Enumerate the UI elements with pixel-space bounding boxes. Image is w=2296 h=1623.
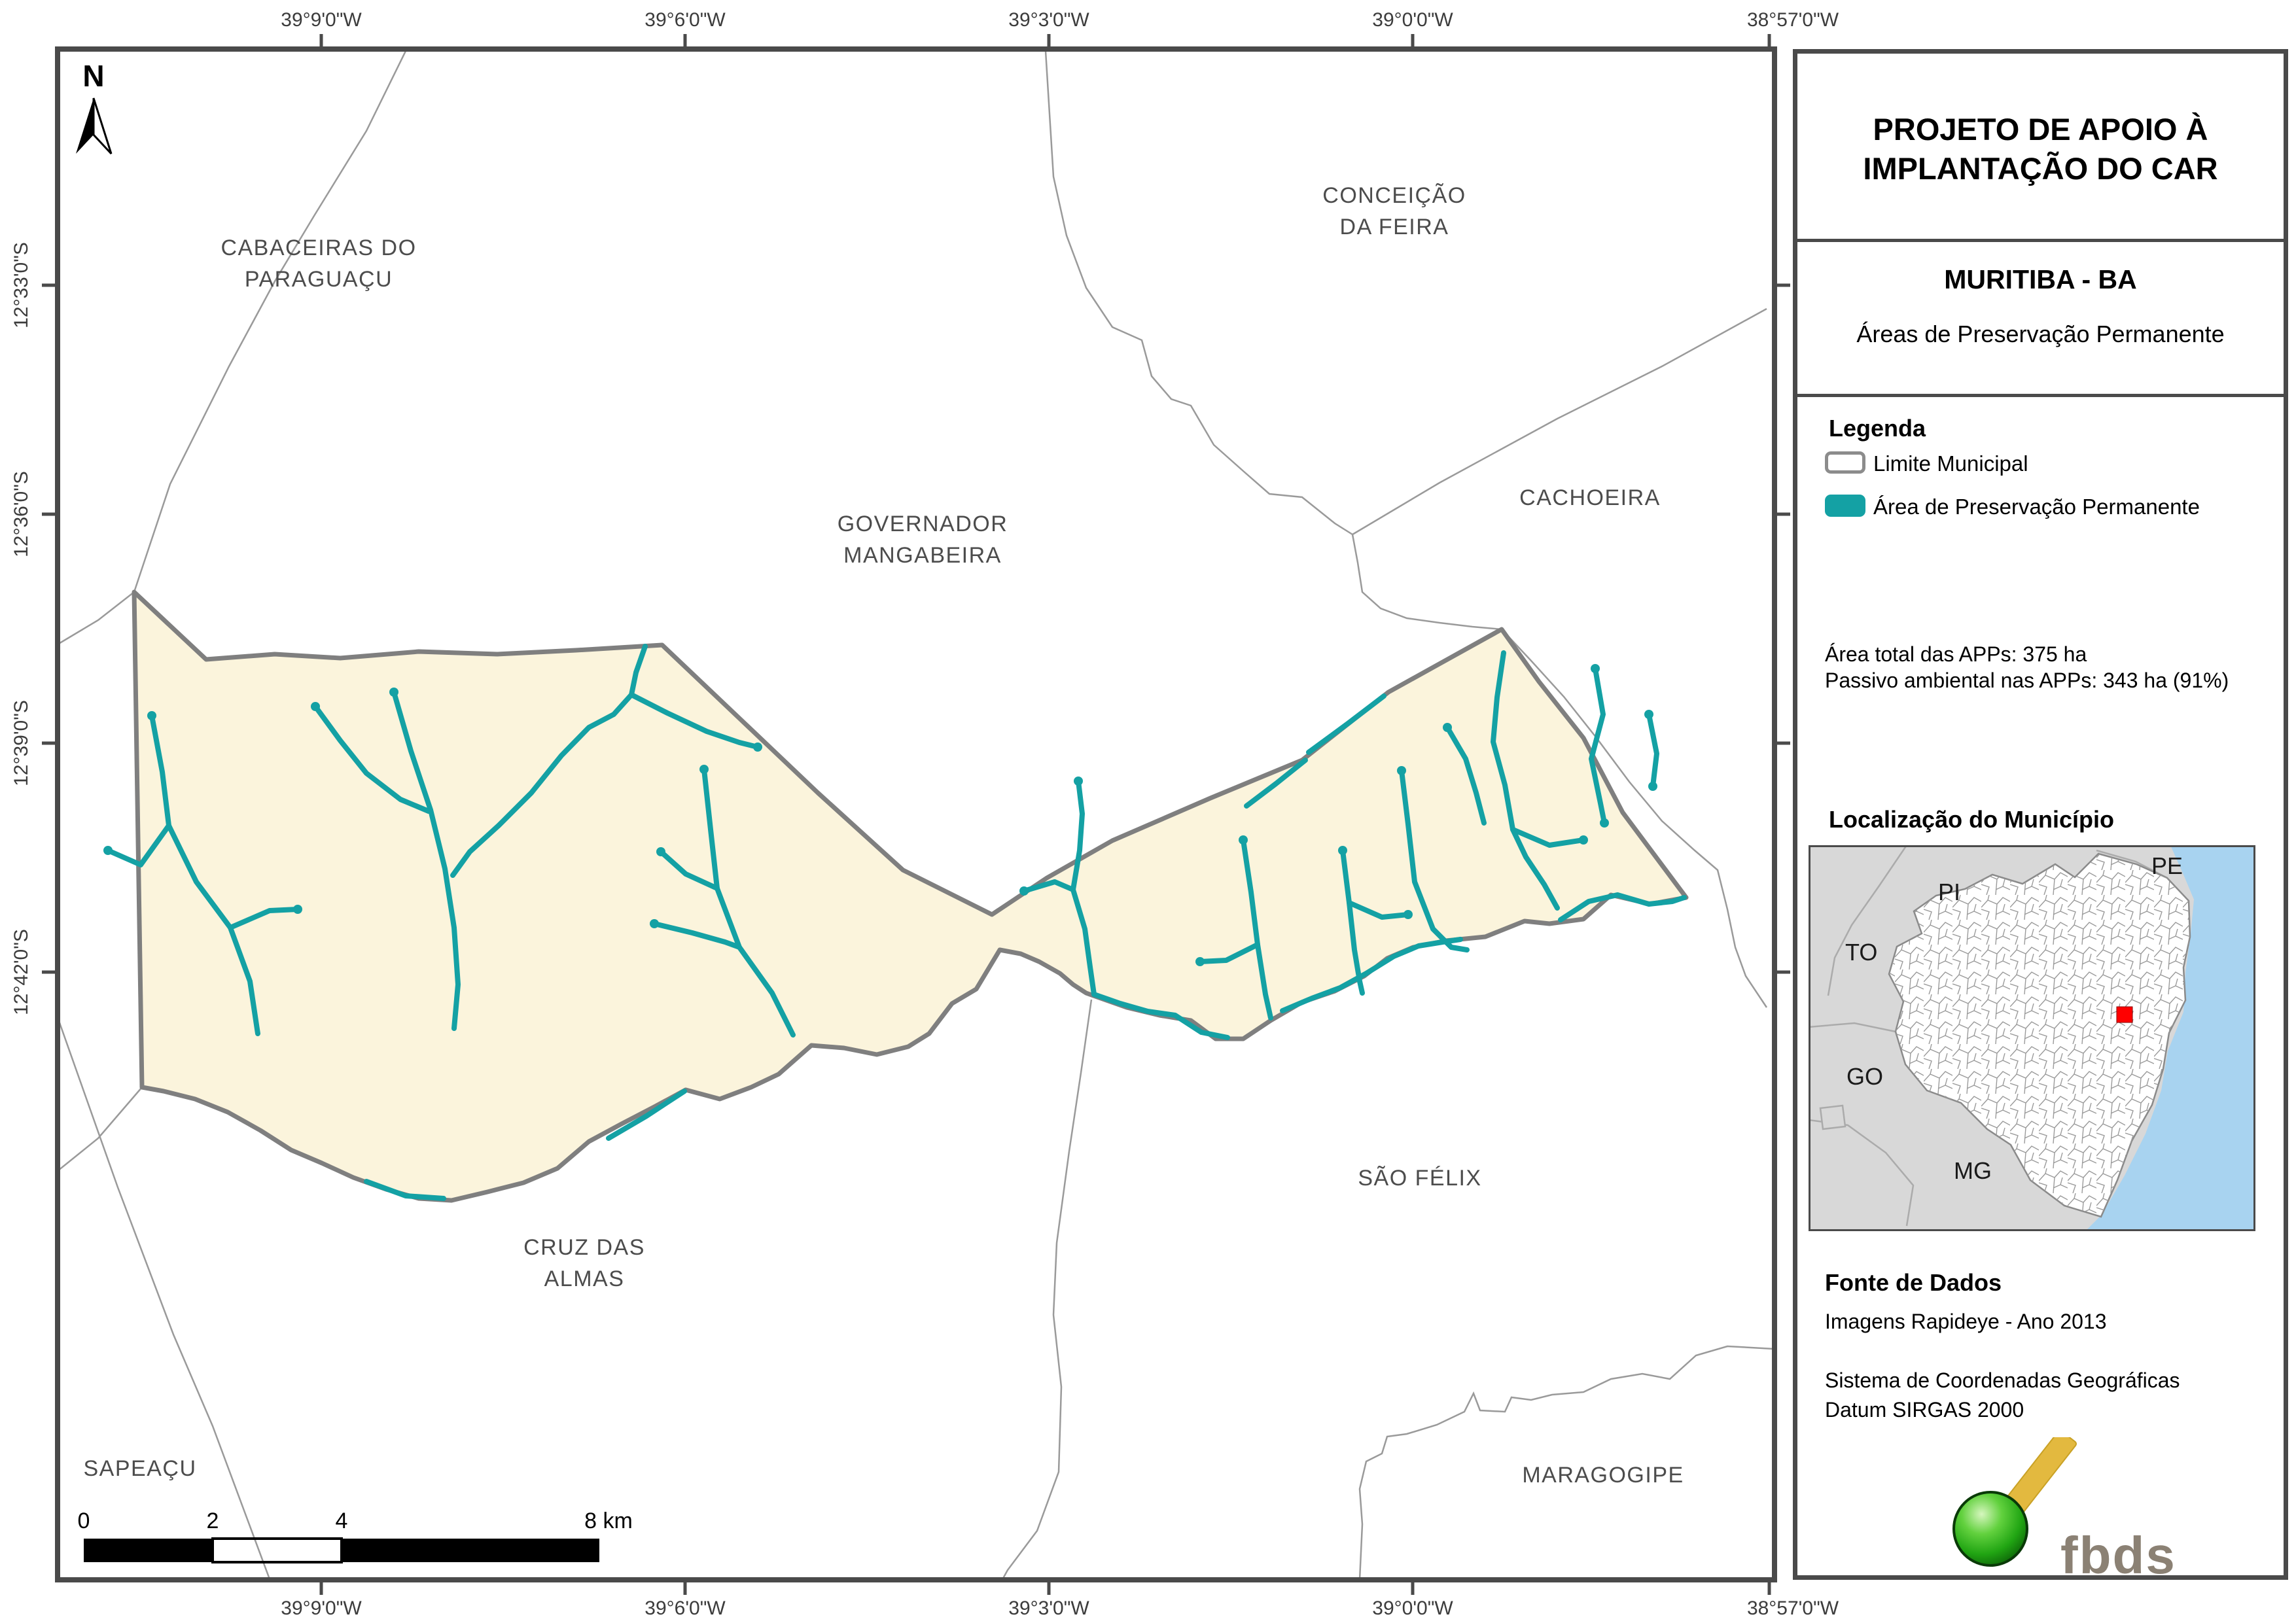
coord-top-1: 39°9'0"W: [281, 9, 362, 31]
label-sapeacu: SAPEAÇU: [84, 1456, 197, 1481]
state-label-mg: MG: [1954, 1157, 1992, 1184]
location-inset-map: PI PE TO GO MG: [1809, 845, 2255, 1231]
label-sao-felix: SÃO FÉLIX: [1358, 1166, 1481, 1191]
coord-bottom-2: 39°6'0"W: [645, 1597, 726, 1619]
legend-title: Legenda: [1829, 415, 1926, 442]
label-cachoeira: CACHOEIRA: [1519, 485, 1661, 510]
coord-bottom-5: 38°57'0"W: [1747, 1597, 1839, 1619]
municipality-title: MURITIBA - BA: [1797, 264, 2284, 295]
boundary-west-frame: [58, 592, 134, 644]
data-source-datum: Datum SIRGAS 2000: [1825, 1398, 2024, 1422]
scale-label-0: 0: [78, 1509, 90, 1533]
boundary-sao-felix: [993, 1000, 1091, 1596]
coord-top-4: 39°0'0"W: [1372, 9, 1453, 31]
north-arrow-label: N: [82, 59, 104, 93]
coord-top-5: 38°57'0"W: [1747, 9, 1839, 31]
logo-green-sphere: [1954, 1492, 2027, 1565]
scale-label-2: 2: [207, 1509, 219, 1533]
state-label-pe: PE: [2151, 852, 2183, 879]
scale-bar-segment-white: [213, 1539, 342, 1562]
inset-map-svg: PI PE TO GO MG: [1809, 845, 2255, 1231]
divider: [1797, 394, 2284, 397]
fbds-logo: fbds: [1915, 1437, 2229, 1588]
coord-top-3: 39°3'0"W: [1008, 9, 1089, 31]
coord-left-1: 12°33'0"S: [10, 242, 32, 328]
label-conceicao-line2: DA FEIRA: [1340, 215, 1449, 239]
scale-bar-segment-black2: [342, 1539, 599, 1562]
scale-bar-segment-black1: [84, 1539, 213, 1562]
boundary-conceicao: [1046, 51, 1352, 534]
label-cabaceiras-line2: PARAGUAÇU: [245, 267, 393, 292]
location-section-title: Localização do Município: [1829, 806, 2114, 833]
legend-swatch-app: [1825, 495, 1865, 517]
muritiba-location-marker: [2117, 1007, 2132, 1022]
state-label-pi: PI: [1938, 879, 1960, 905]
legend-item-label: Área de Preservação Permanente: [1873, 495, 2200, 519]
label-conceicao-line1: CONCEIÇÃO: [1322, 183, 1466, 208]
state-label-to: TO: [1845, 939, 1877, 966]
app-liability-stat: Passivo ambiental nas APPs: 343 ha (91%): [1825, 669, 2229, 693]
state-label-go: GO: [1846, 1063, 1883, 1090]
divider: [1797, 239, 2284, 242]
label-cruz-line1: CRUZ DAS: [523, 1235, 645, 1260]
coord-left-3: 12°39'0"S: [10, 700, 32, 786]
app-total-area-stat: Área total das APPs: 375 ha: [1825, 642, 2087, 667]
boundary-southwest-corner: [58, 1087, 142, 1171]
boundary-cabaceiras: [134, 51, 406, 592]
coord-top-2: 39°6'0"W: [645, 9, 726, 31]
app-stream: [1649, 714, 1657, 786]
data-source-title: Fonte de Dados: [1825, 1269, 2002, 1297]
label-cruz-line2: ALMAS: [544, 1266, 625, 1291]
legend-swatch-limite-municipal: [1825, 451, 1865, 474]
label-governador-line2: MANGABEIRA: [843, 543, 1002, 568]
project-title-line1: PROJETO DE APOIO À: [1797, 111, 2284, 147]
scale-bar: 0 2 4 8 km: [78, 1509, 633, 1562]
map-subtitle: Áreas de Preservação Permanente: [1797, 321, 2284, 348]
north-arrow-right-half: [94, 98, 111, 154]
map-document: CABACEIRAS DO PARAGUAÇU CONCEIÇÃO DA FEI…: [0, 0, 2296, 1623]
project-title-line2: IMPLANTAÇÃO DO CAR: [1797, 150, 2284, 186]
scale-label-4: 4: [336, 1509, 348, 1533]
data-source-crs: Sistema de Coordenadas Geográficas: [1825, 1369, 2180, 1393]
muritiba-municipality-polygon: [134, 592, 1686, 1200]
coord-bottom-3: 39°3'0"W: [1008, 1597, 1089, 1619]
north-arrow-left-half: [76, 98, 94, 154]
coord-left-4: 12°42'0"S: [10, 929, 32, 1015]
north-arrow: N: [76, 59, 111, 154]
coord-bottom-4: 39°0'0"W: [1372, 1597, 1453, 1619]
label-maragogipe: MARAGOGIPE: [1522, 1463, 1684, 1488]
info-panel: PROJETO DE APOIO À IMPLANTAÇÃO DO CAR MU…: [1793, 49, 2288, 1580]
coord-bottom-1: 39°9'0"W: [281, 1597, 362, 1619]
fbds-logo-svg: fbds: [1915, 1437, 2229, 1588]
label-governador-line1: GOVERNADOR: [838, 512, 1008, 536]
legend-item-label: Limite Municipal: [1873, 451, 2028, 476]
coord-left-2: 12°36'0"S: [10, 471, 32, 557]
data-source-imagery: Imagens Rapideye - Ano 2013: [1825, 1310, 2107, 1334]
label-cabaceiras-line1: CABACEIRAS DO: [221, 236, 416, 260]
logo-wordmark: fbds: [2060, 1526, 2176, 1584]
scale-label-8km: 8 km: [584, 1509, 633, 1533]
